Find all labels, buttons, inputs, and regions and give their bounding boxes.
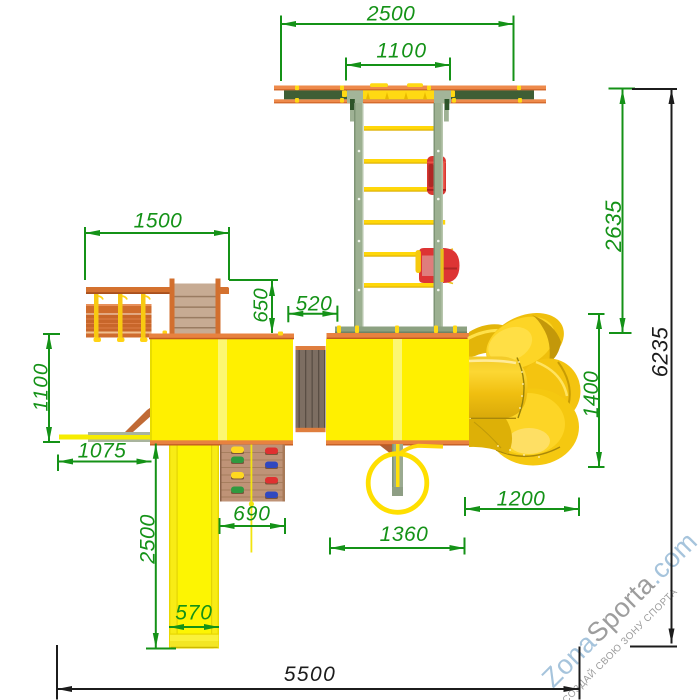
svg-text:2635: 2635 (601, 200, 626, 253)
svg-text:1400: 1400 (580, 371, 603, 418)
svg-text:570: 570 (175, 601, 212, 624)
svg-text:1200: 1200 (497, 488, 546, 511)
svg-text:1500: 1500 (134, 210, 183, 233)
svg-text:2500: 2500 (366, 2, 415, 25)
svg-text:520: 520 (296, 293, 333, 316)
svg-text:1100: 1100 (30, 363, 53, 412)
svg-text:6235: 6235 (648, 326, 673, 377)
svg-text:1360: 1360 (380, 523, 429, 546)
svg-text:5500: 5500 (284, 663, 336, 686)
svg-text:690: 690 (233, 503, 271, 526)
svg-text:1075: 1075 (78, 440, 127, 463)
svg-text:1100: 1100 (376, 39, 427, 62)
svg-text:650: 650 (250, 288, 273, 323)
svg-text:2500: 2500 (135, 514, 159, 564)
